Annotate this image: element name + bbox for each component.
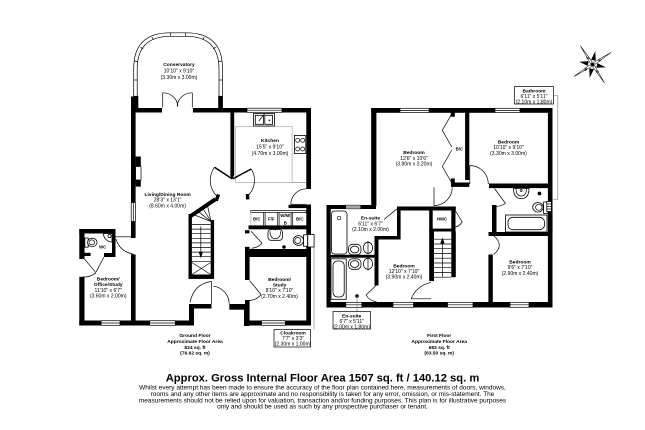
svg-text:(4.70m x 3.00m): (4.70m x 3.00m) [252,151,289,157]
svg-text:Bedroom/: Bedroom/ [97,277,120,283]
svg-text:Ground Floor: Ground Floor [179,333,210,339]
svg-text:(76.62 sq. m): (76.62 sq. m) [180,351,210,357]
svg-text:(3.30m x 3.00m): (3.30m x 3.00m) [161,75,198,81]
svg-text:(2.00m x 1.80m): (2.00m x 1.80m) [333,324,370,330]
svg-text:First Floor: First Floor [427,333,451,339]
svg-text:B/C: B/C [296,216,304,221]
svg-text:Approximate Floor Area: Approximate Floor Area [411,339,467,345]
svg-text:(3.90m x 2.40m): (3.90m x 2.40m) [386,275,423,281]
svg-text:(2.30m x 1.00m): (2.30m x 1.00m) [275,342,312,348]
svg-text:B: B [284,220,287,225]
svg-text:B/C: B/C [253,216,261,221]
svg-text:Kitchen: Kitchen [261,138,279,144]
svg-text:(2.70m x 2.40m): (2.70m x 2.40m) [261,294,298,300]
svg-text:B/C: B/C [456,146,464,151]
svg-text:(63.50 sq. m): (63.50 sq. m) [424,351,454,357]
svg-text:only and should be used as suc: only and should be used as such by any p… [217,404,428,411]
svg-text:(3.60m x 2.00m): (3.60m x 2.00m) [90,294,127,300]
svg-text:(2.10m x 1.80m): (2.10m x 1.80m) [516,99,553,105]
svg-text:Conservatory: Conservatory [163,62,195,68]
svg-text:(3.80m x 3.20m): (3.80m x 3.20m) [396,162,433,168]
svg-text:(2.90m x 2.40m): (2.90m x 2.40m) [502,271,539,277]
svg-text:683 sq. ft: 683 sq. ft [429,345,451,351]
svg-text:Approximate Floor Area: Approximate Floor Area [167,339,223,345]
svg-text:(2.10m x 2.00m): (2.10m x 2.00m) [352,227,389,233]
svg-text:HWC: HWC [437,217,448,222]
svg-text:10'10" x 9'10": 10'10" x 9'10" [164,69,195,75]
svg-text:824 sq. ft: 824 sq. ft [184,345,206,351]
svg-text:(3.30m x 3.00m): (3.30m x 3.00m) [490,151,527,157]
svg-text:WC: WC [99,245,107,250]
svg-text:W/M/: W/M/ [280,213,291,218]
svg-text:15'5" x 9'10": 15'5" x 9'10" [256,145,284,151]
svg-text:(8.60m x 4.00m): (8.60m x 4.00m) [149,203,186,209]
svg-text:Bedroom/: Bedroom/ [268,277,291,283]
svg-text:F/F: F/F [268,216,275,221]
svg-text:Approx. Gross Internal Floor A: Approx. Gross Internal Floor Area 1507 s… [166,373,480,385]
